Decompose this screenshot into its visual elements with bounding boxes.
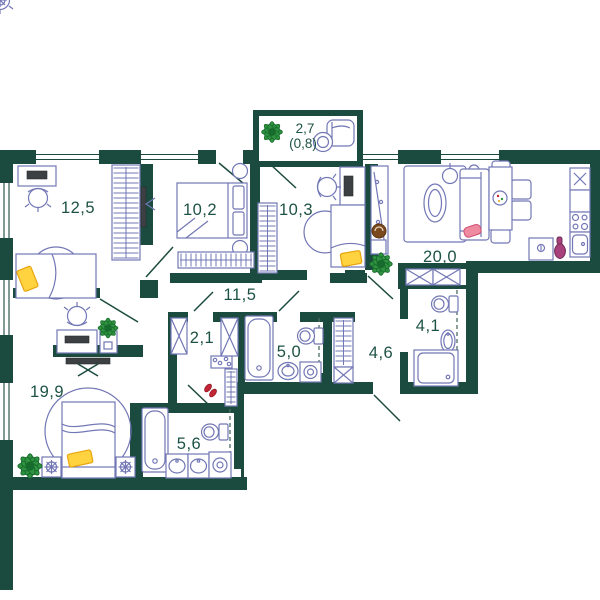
double-bed	[62, 402, 115, 478]
pillow	[340, 250, 362, 266]
counter-cabinet	[570, 190, 590, 212]
floor-plan: 2,7 (0,8) 12,5	[0, 0, 600, 600]
room-entrance-hall: 4,6	[334, 318, 393, 383]
office-chair	[25, 189, 51, 213]
single-bed	[16, 247, 96, 299]
door-swing	[146, 247, 173, 277]
shoes-icon	[203, 383, 218, 398]
room-bathroom-bottom: 5,6	[142, 408, 231, 478]
plant-icon	[18, 454, 42, 478]
washing-machine	[300, 362, 321, 382]
toilet	[432, 296, 459, 312]
door-swing	[279, 291, 299, 311]
toilet	[202, 424, 229, 440]
wardrobe-box	[171, 318, 187, 354]
room-area-label: 4,6	[369, 344, 393, 362]
window	[141, 150, 198, 164]
door-swing	[194, 292, 213, 311]
room-area-label: 12,5	[61, 199, 95, 217]
plant-stand	[98, 318, 118, 353]
tv-on-stand	[66, 358, 110, 376]
room-closet: 2,1	[171, 318, 238, 356]
room-bedroom-top-right: 10,3	[258, 167, 365, 273]
kitchen-counter	[570, 168, 590, 257]
balcony-reduced-area-label: (0,8)	[289, 136, 317, 151]
desk	[57, 330, 97, 353]
cabinet-box	[334, 367, 353, 383]
sink	[441, 330, 455, 352]
window	[36, 150, 99, 164]
room-bedroom-top-left: 12,5	[16, 165, 155, 299]
floor-plan-canvas: 2,7 (0,8) 12,5	[0, 0, 600, 600]
vent-shaft	[406, 269, 460, 285]
kitchen-island	[529, 238, 553, 260]
window	[441, 150, 499, 164]
room-area-label: 2,1	[190, 329, 214, 347]
desk	[18, 166, 56, 186]
room-area-label: 4,1	[416, 317, 440, 335]
balcony-area-label: 2,7	[296, 121, 315, 136]
room-area-label: 5,6	[177, 435, 201, 453]
stool	[372, 224, 386, 238]
desk	[340, 167, 365, 205]
bathtub	[245, 316, 273, 380]
nightstand-with-lamp	[42, 457, 61, 477]
window	[0, 383, 13, 440]
room-area-label: 5,0	[277, 343, 301, 361]
sofa	[460, 169, 489, 240]
plant-icon	[370, 253, 393, 276]
sink-cabinet	[166, 454, 188, 478]
room-kitchen-living: 20,0	[370, 161, 590, 275]
room-area-label: 10,3	[279, 201, 313, 219]
room-area-label: 10,2	[183, 201, 217, 219]
shower-tray	[414, 350, 458, 386]
door-swing	[100, 299, 138, 322]
single-bed	[304, 205, 365, 267]
plant-icon	[262, 122, 283, 143]
nightstand-with-lamp	[116, 457, 135, 477]
sink-cabinet	[188, 454, 209, 478]
room-area-label: 20,0	[423, 248, 457, 266]
room-balcony: 2,7 (0,8)	[256, 113, 360, 164]
window	[0, 183, 13, 238]
dining-table	[489, 161, 531, 243]
sink	[278, 363, 298, 380]
vase	[555, 237, 566, 259]
door-swing	[368, 276, 393, 299]
coat-rack	[211, 356, 232, 368]
office-chair	[318, 174, 342, 200]
room-area-label: 19,9	[30, 383, 64, 401]
balcony-door-swing	[270, 164, 296, 188]
plant-icon	[98, 318, 118, 338]
entrance-door-swing	[374, 395, 400, 421]
stove	[570, 212, 590, 232]
room-bedroom-top-middle: 10,2	[177, 164, 254, 269]
washing-machine	[209, 452, 231, 478]
shoe-box	[371, 240, 386, 254]
bathtub	[142, 408, 168, 472]
room-bathroom-middle: 5,0	[245, 316, 323, 382]
kitchen-sink	[570, 232, 590, 257]
coffee-table	[424, 184, 446, 222]
nightstand	[233, 164, 248, 179]
window	[0, 280, 13, 335]
toilet	[298, 328, 324, 344]
office-chair	[64, 302, 90, 326]
wardrobe-box	[221, 318, 238, 356]
room-bedroom-bottom-left: 19,9	[18, 302, 135, 478]
room-area-label: 11,5	[224, 286, 257, 304]
